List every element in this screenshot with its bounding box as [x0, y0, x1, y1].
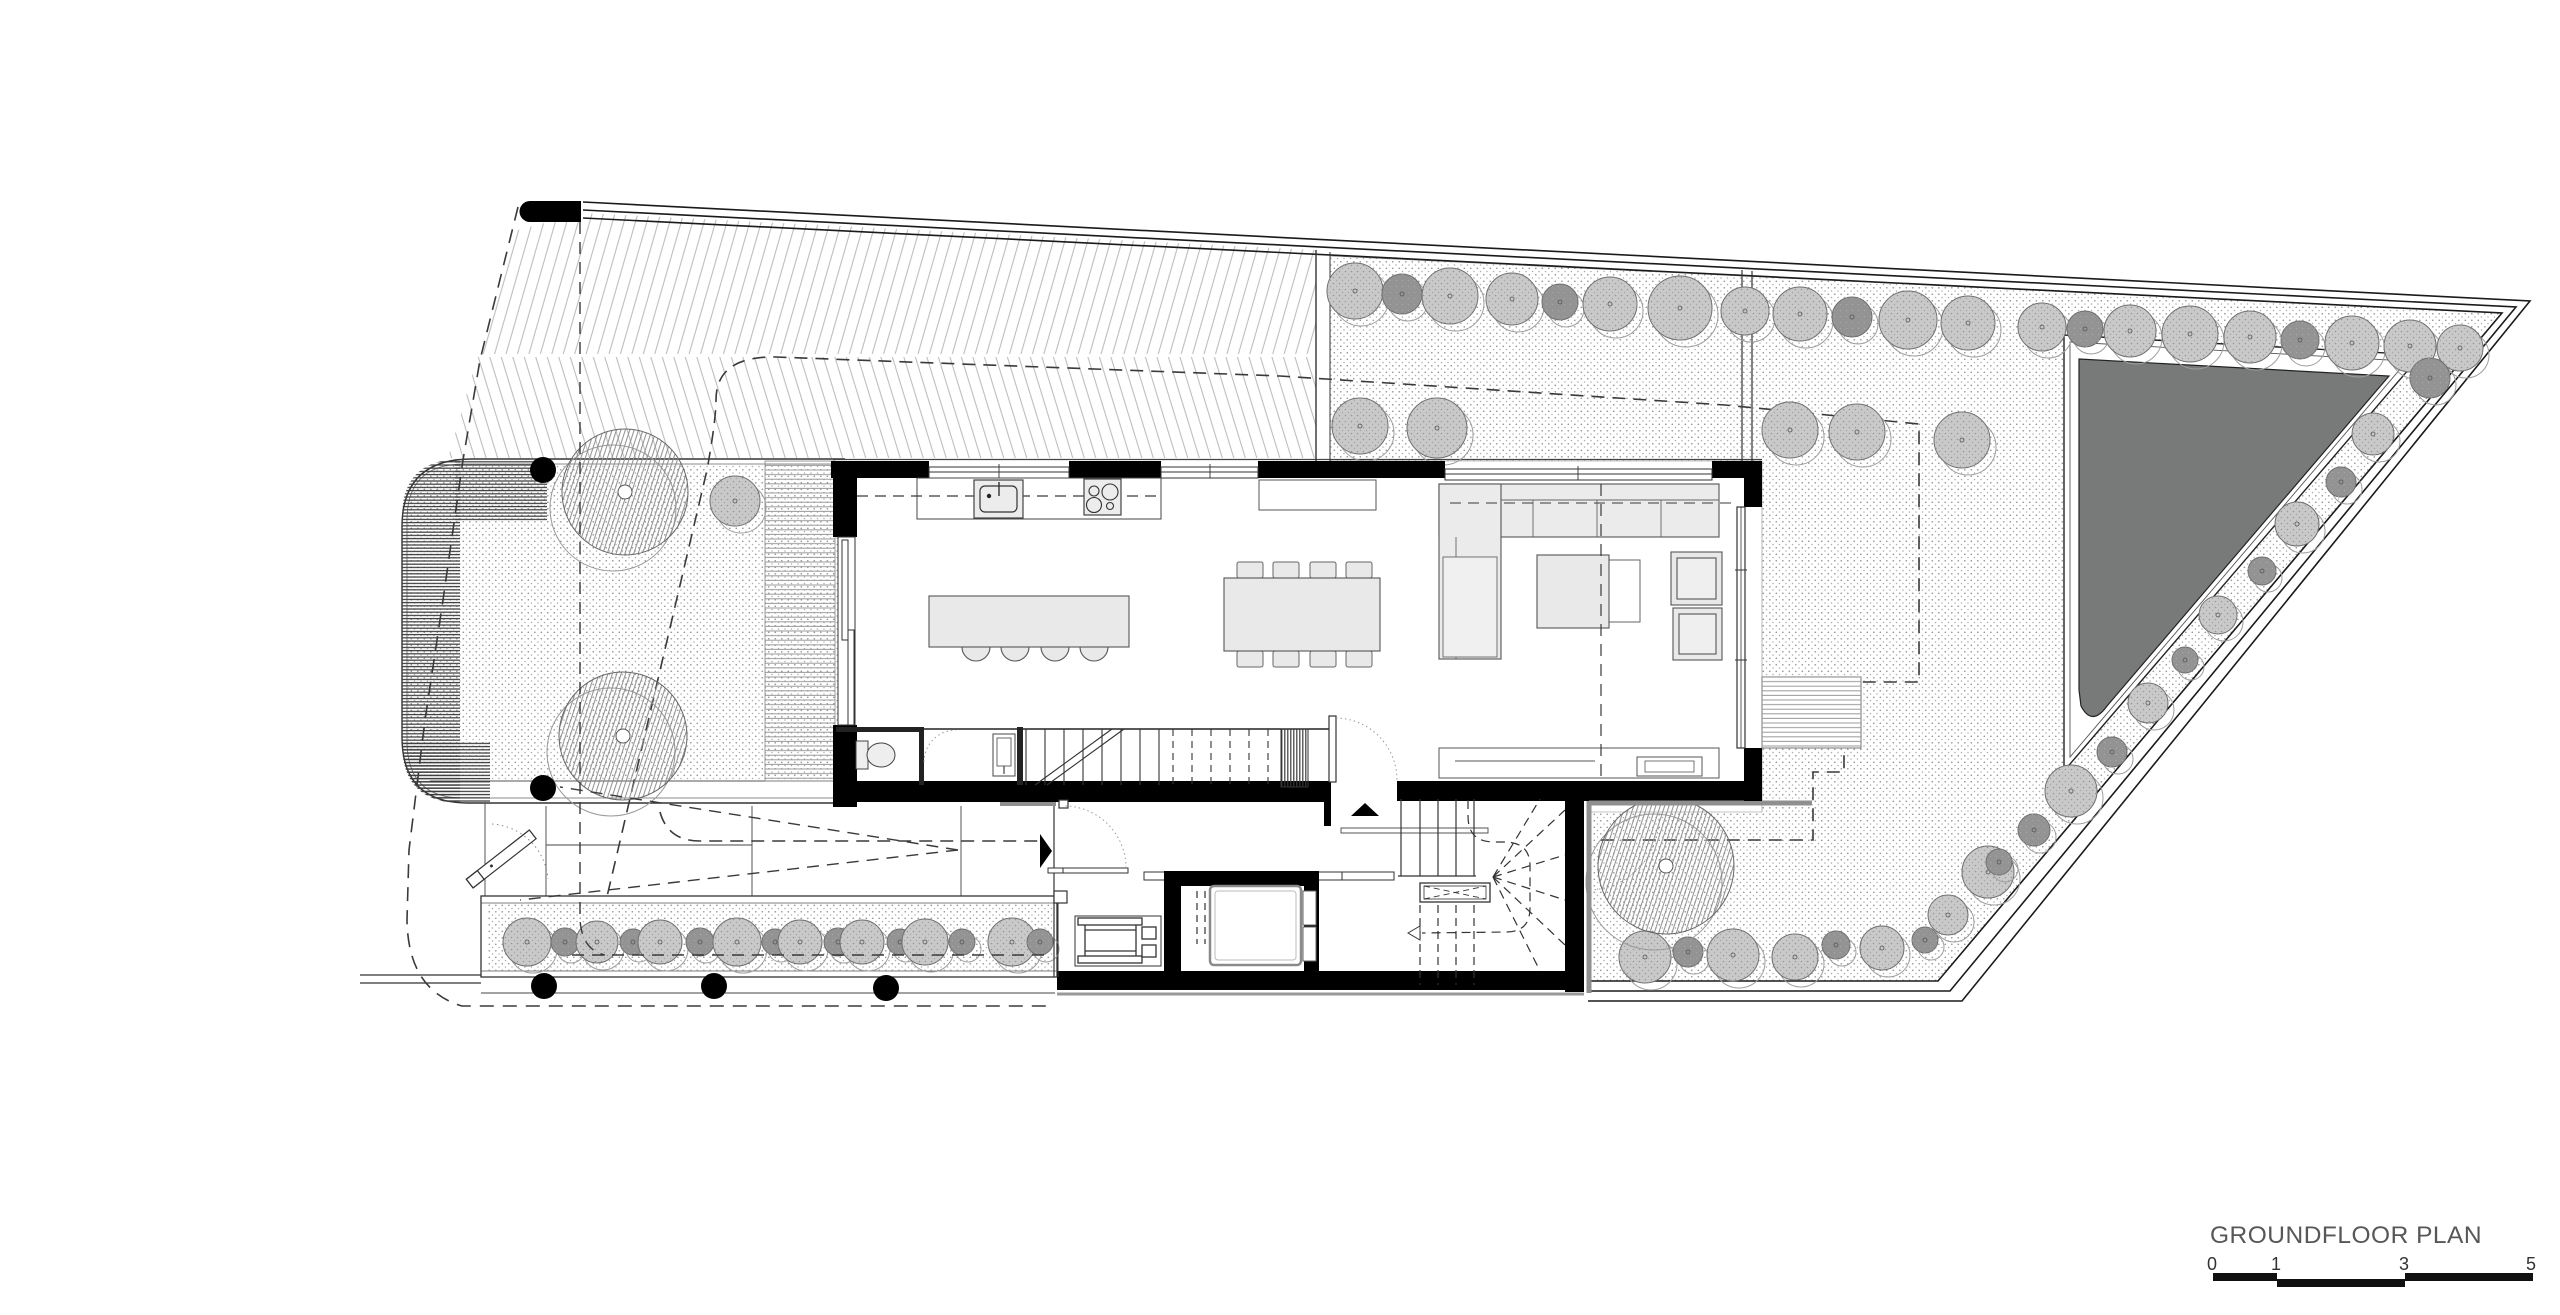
svg-text:1: 1 — [2271, 1254, 2281, 1274]
svg-text:5: 5 — [2526, 1254, 2536, 1274]
svg-text:GROUNDFLOOR PLAN: GROUNDFLOOR PLAN — [2210, 1222, 2482, 1249]
svg-text:0: 0 — [2207, 1254, 2217, 1274]
svg-text:3: 3 — [2399, 1254, 2409, 1274]
